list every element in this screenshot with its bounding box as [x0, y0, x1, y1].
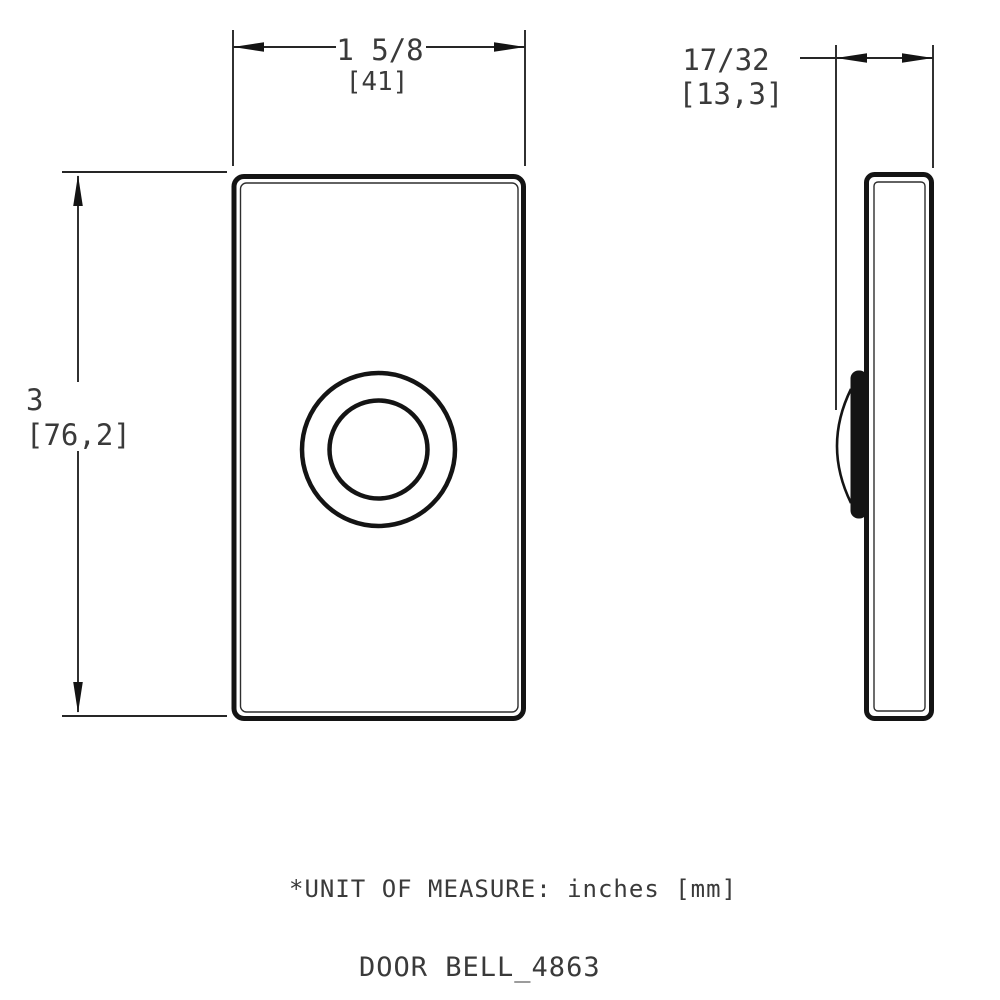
arrowhead-up-icon [73, 175, 83, 206]
technical-drawing-canvas: 1 5/8 [41] 3 [76,2] 17/32 [13,3] *UNIT O… [0, 0, 1000, 1000]
front-height-value: 3 [26, 383, 43, 417]
button-inner-ring [330, 401, 428, 499]
front-width-mm: [41] [346, 67, 409, 97]
side-depth-mm: [13,3] [679, 77, 784, 111]
front-view [234, 177, 524, 719]
arrowhead-right-icon [494, 42, 525, 52]
side-depth-dimension: 17/32 [13,3] [679, 43, 933, 410]
door-bell-drawing: 1 5/8 [41] 3 [76,2] 17/32 [13,3] *UNIT O… [0, 0, 1000, 1000]
arrowhead-left-icon [836, 53, 867, 63]
front-width-value: 1 5/8 [336, 33, 423, 67]
side-plate-outline [867, 175, 932, 719]
side-plate-inner-edge [874, 182, 925, 711]
side-button-dome-arc [837, 389, 851, 503]
front-height-mm: [76,2] [26, 418, 131, 452]
unit-of-measure-note: *UNIT OF MEASURE: inches [mm] [289, 875, 737, 903]
front-plate-outline [234, 177, 524, 719]
arrowhead-right-icon [902, 53, 933, 63]
side-button-profile [851, 371, 867, 518]
side-view [837, 175, 932, 719]
arrowhead-left-icon [233, 42, 264, 52]
drawing-title: DOOR BELL_4863 [359, 952, 601, 983]
front-height-dimension: 3 [76,2] [26, 172, 227, 716]
front-plate-inner-edge [241, 183, 519, 712]
arrowhead-down-icon [73, 682, 83, 713]
front-width-dimension: 1 5/8 [41] [233, 30, 525, 166]
side-depth-value: 17/32 [682, 43, 769, 77]
button-outer-ring [302, 373, 455, 526]
